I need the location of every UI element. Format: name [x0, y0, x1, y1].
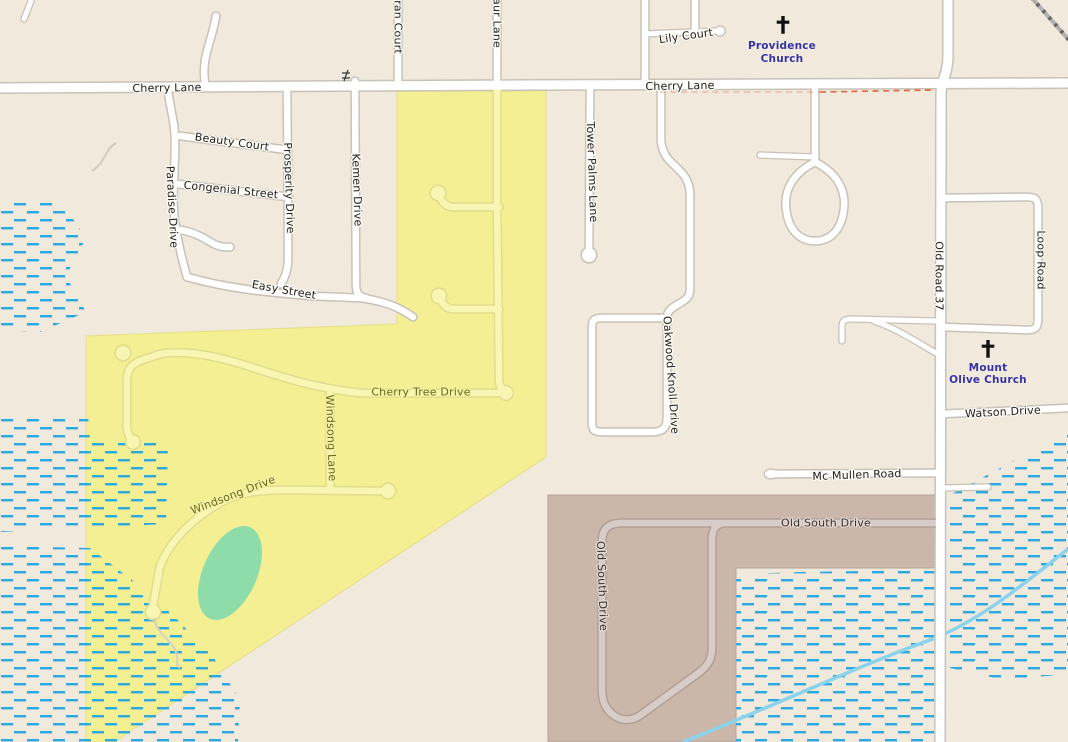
cul-de-sac — [381, 484, 395, 498]
road-teardrop-stub — [760, 155, 815, 157]
cul-de-sac — [116, 346, 130, 360]
cul-de-sac — [431, 186, 445, 200]
church-label: Church — [761, 53, 804, 65]
road-end-cap — [765, 470, 777, 478]
church-label: Providence — [748, 40, 816, 52]
street-label-cherry-lane-east: Cherry Lane — [645, 79, 714, 93]
cul-de-sac — [126, 435, 139, 448]
cul-de-sac — [146, 605, 160, 619]
street-label-cherry-lane-west: Cherry Lane — [132, 81, 201, 95]
church-label: Mount — [969, 362, 1008, 374]
street-label-kemen-drive: Kemen Drive — [349, 153, 365, 226]
wetland-area — [736, 570, 935, 742]
cul-de-sac — [499, 386, 512, 399]
road-stub — [941, 487, 988, 488]
cul-de-sac — [582, 248, 596, 262]
church-label: Olive Church — [949, 374, 1027, 386]
street-label-ran-court: ran Court — [392, 0, 405, 54]
road-end-cap — [227, 244, 234, 251]
map-canvas[interactable]: Cherry Lane Cherry Lane Lily Court ran C… — [0, 0, 1068, 742]
street-label-cherry-tree-drive: Cherry Tree Drive — [371, 386, 470, 399]
street-label-old-south-drive-h: Old South Drive — [781, 517, 871, 530]
map-viewport: Cherry Lane Cherry Lane Lily Court ran C… — [0, 0, 1068, 742]
street-label-aur-lane: aur Lane — [491, 0, 504, 48]
cul-de-sac — [716, 27, 725, 36]
street-label-loop-road: Loop Road — [1035, 230, 1048, 289]
cul-de-sac — [432, 289, 446, 303]
street-label-old-road-37: Old Road 37 — [933, 241, 946, 311]
